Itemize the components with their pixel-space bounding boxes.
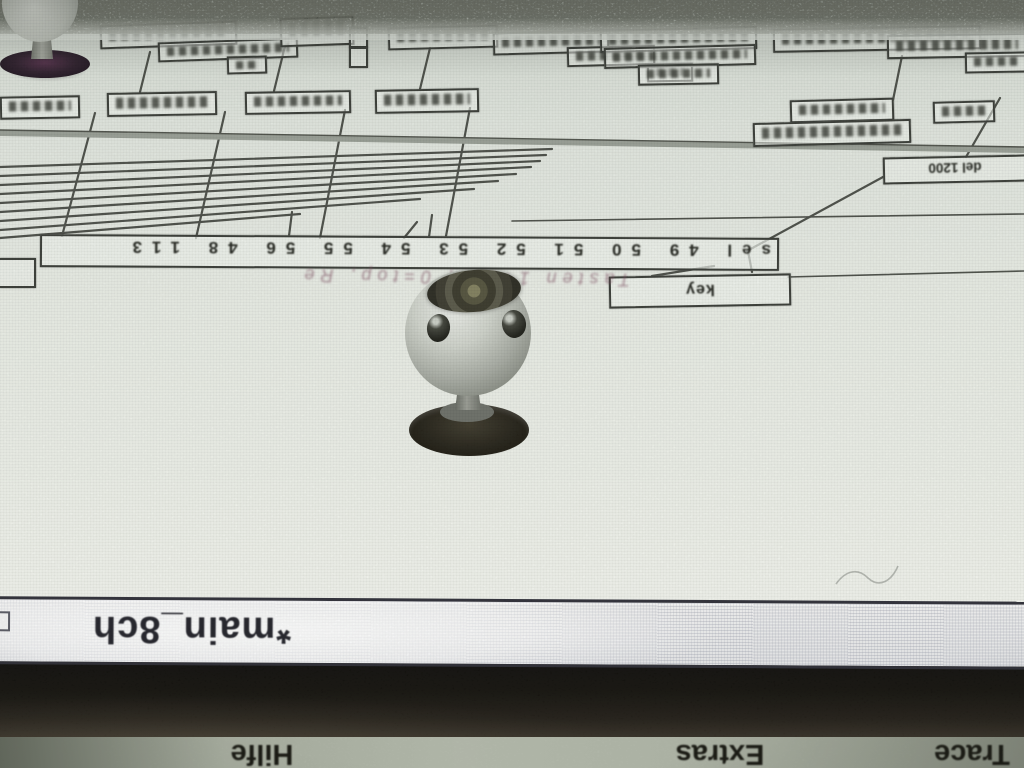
object-box[interactable] [227, 55, 267, 74]
delay-object-box[interactable]: del 1200 [883, 154, 1024, 184]
blurred-text [9, 100, 71, 112]
webcam-object [395, 258, 555, 470]
object-box[interactable] [245, 90, 351, 115]
window-title: *main_8ch [92, 607, 291, 651]
titlebar-widget[interactable] [0, 611, 10, 631]
noise-fade [0, 18, 1024, 40]
object-box[interactable] [965, 51, 1024, 73]
blurred-text [974, 57, 1018, 67]
object-box[interactable] [349, 47, 368, 68]
object-box[interactable] [933, 100, 996, 124]
webcam-far-sphere [2, 0, 78, 42]
blurred-text [236, 61, 258, 69]
blurred-text [762, 124, 902, 139]
blurred-text [167, 43, 289, 56]
key-object-label: key [611, 278, 789, 299]
pencil-scribble [836, 566, 898, 584]
delay-object-label: del 1200 [885, 159, 1024, 177]
screen-photo: del 1200 sel 49 50 51 52 53 54 55 56 48 … [0, 0, 1024, 768]
object-box[interactable] [0, 258, 36, 288]
key-object-box[interactable]: key [609, 273, 792, 308]
object-box[interactable] [638, 63, 719, 85]
menu-bar: Hilfe Extras Trace [0, 737, 1024, 768]
object-box[interactable] [375, 88, 479, 114]
blurred-text [116, 96, 208, 109]
blurred-text [613, 49, 747, 62]
bezel-sheen [0, 659, 1024, 739]
webcam-object-far [0, 0, 100, 90]
window-title-bar[interactable]: *main_8ch [0, 596, 1024, 669]
blurred-text [942, 105, 986, 116]
blurred-text [647, 68, 710, 78]
menu-item-hilfe[interactable]: Hilfe [192, 737, 332, 768]
monitor-bezel [0, 659, 1024, 739]
menu-item-extras[interactable]: Extras [636, 737, 804, 768]
blurred-text [384, 93, 470, 105]
blurred-text [799, 103, 885, 116]
object-box[interactable] [753, 119, 912, 147]
menu-item-trace[interactable]: Trace [902, 737, 1024, 768]
blurred-text [254, 95, 342, 107]
object-box[interactable] [0, 95, 80, 119]
object-box[interactable] [107, 91, 217, 117]
